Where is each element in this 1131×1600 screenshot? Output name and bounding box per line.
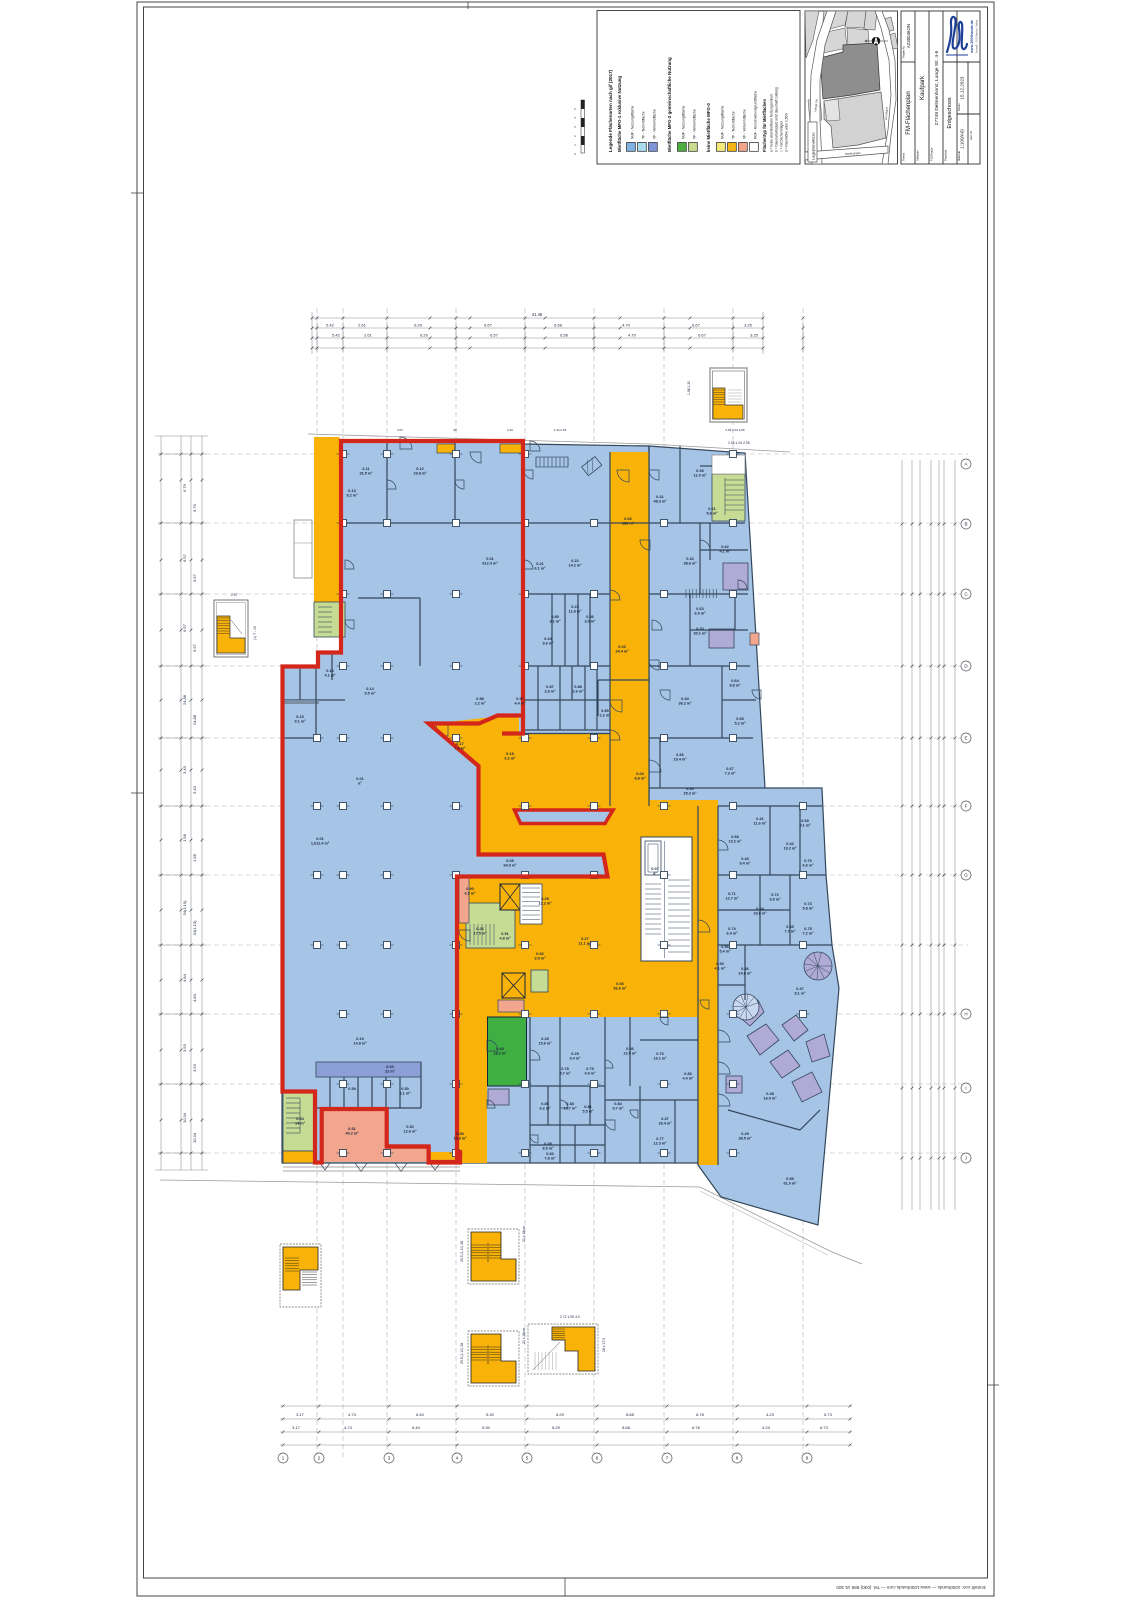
svg-text:8.1 m²: 8.1 m² bbox=[795, 992, 807, 996]
svg-text:Gebäude: Gebäude bbox=[916, 150, 920, 161]
svg-text:2.97: 2.97 bbox=[231, 593, 238, 597]
svg-text:0.31: 0.31 bbox=[656, 495, 663, 499]
svg-text:25.5 (1.10) 28: 25.5 (1.10) 28 bbox=[460, 1343, 464, 1364]
svg-text:F: F bbox=[965, 804, 968, 809]
svg-text:Mietfläche MFG-1 exklusive Nut: Mietfläche MFG-1 exklusive Nutzung bbox=[617, 76, 622, 152]
svg-text:0.92: 0.92 bbox=[536, 952, 543, 956]
svg-text:0.75: 0.75 bbox=[804, 927, 811, 931]
svg-text:6.6 m²: 6.6 m² bbox=[803, 864, 815, 868]
svg-text:5.5 m²: 5.5 m² bbox=[583, 1110, 595, 1114]
svg-text:9.4 m²: 9.4 m² bbox=[570, 1057, 582, 1061]
svg-text:19.4 m²: 19.4 m² bbox=[673, 758, 687, 762]
svg-text:6.57: 6.57 bbox=[192, 643, 197, 652]
svg-text:5.42: 5.42 bbox=[326, 323, 335, 328]
svg-text:9.6 m²: 9.6 m² bbox=[543, 642, 555, 646]
svg-text:0.91: 0.91 bbox=[501, 932, 508, 936]
svg-text:0.26: 0.26 bbox=[476, 927, 483, 931]
svg-text:Projekt-Nr.: Projekt-Nr. bbox=[902, 45, 906, 58]
svg-text:10.2 m²: 10.2 m² bbox=[728, 840, 742, 844]
svg-text:0.82: 0.82 bbox=[546, 1152, 553, 1156]
svg-text:0.54: 0.54 bbox=[296, 1117, 304, 1121]
svg-text:6.1 m²: 6.1 m² bbox=[535, 567, 547, 571]
svg-text:1.58: 1.58 bbox=[182, 833, 187, 842]
svg-text:6.57: 6.57 bbox=[192, 573, 197, 582]
svg-text:5.8 m²: 5.8 m² bbox=[803, 907, 815, 911]
svg-text:30.1 m²: 30.1 m² bbox=[693, 632, 707, 636]
svg-text:0.11: 0.11 bbox=[362, 467, 369, 471]
svg-text:6.40: 6.40 bbox=[412, 1425, 421, 1430]
svg-text:6.2 m²: 6.2 m² bbox=[540, 1107, 552, 1111]
svg-text:6.9 m²: 6.9 m² bbox=[695, 612, 707, 616]
svg-text:b = Dauerarbeitsplatz nicht da: b = Dauerarbeitsplatz nicht dauerhaft zu… bbox=[775, 87, 779, 152]
svg-text:TF - Technikfläche: TF - Technikfläche bbox=[642, 111, 646, 139]
svg-text:6.57: 6.57 bbox=[490, 333, 499, 338]
svg-text:6.73: 6.73 bbox=[820, 1425, 829, 1430]
svg-text:3.17: 3.17 bbox=[296, 1412, 305, 1417]
svg-text:0.78: 0.78 bbox=[561, 1067, 568, 1071]
svg-text:13.7 m²: 13.7 m² bbox=[563, 1107, 577, 1111]
svg-text:J: J bbox=[965, 1156, 967, 1161]
svg-text:64.0 m²: 64.0 m² bbox=[503, 864, 517, 868]
svg-text:6.40: 6.40 bbox=[416, 1412, 425, 1417]
svg-text:Legende Flächenarten nach gif: Legende Flächenarten nach gif (2017) bbox=[608, 69, 613, 152]
svg-text:0.27: 0.27 bbox=[581, 937, 588, 941]
svg-text:0.72: 0.72 bbox=[771, 893, 778, 897]
svg-text:4.84: 4.84 bbox=[192, 993, 197, 1002]
svg-text:0.89: 0.89 bbox=[601, 709, 608, 713]
svg-text:24.4 m²: 24.4 m² bbox=[615, 650, 629, 654]
svg-text:0.46: 0.46 bbox=[741, 967, 748, 971]
svg-text:0.61: 0.61 bbox=[708, 507, 715, 511]
svg-text:0.44: 0.44 bbox=[756, 907, 764, 911]
svg-text:6.67: 6.67 bbox=[698, 333, 707, 338]
svg-text:2.6 m²: 2.6 m² bbox=[573, 690, 585, 694]
svg-text:2.72 1.90 4.0: 2.72 1.90 4.0 bbox=[560, 1315, 580, 1319]
svg-text:Lageplanskizze: Lageplanskizze bbox=[811, 132, 816, 160]
svg-text:0.63: 0.63 bbox=[696, 607, 703, 611]
svg-text:G: G bbox=[964, 873, 968, 878]
svg-text:0.74: 0.74 bbox=[728, 927, 736, 931]
svg-text:0.36: 0.36 bbox=[626, 1047, 633, 1051]
svg-text:4.70: 4.70 bbox=[622, 323, 631, 328]
svg-text:34(1.10): 34(1.10) bbox=[192, 920, 197, 936]
svg-text:0.62: 0.62 bbox=[721, 545, 728, 549]
svg-text:0.59: 0.59 bbox=[348, 1087, 355, 1091]
svg-text:0.69: 0.69 bbox=[801, 819, 808, 823]
svg-text:1:100/A0): 1:100/A0) bbox=[960, 129, 965, 149]
svg-text:0.14: 0.14 bbox=[366, 687, 374, 691]
svg-text:9.1 m²: 9.1 m² bbox=[800, 824, 812, 828]
svg-text:48.3 m²: 48.3 m² bbox=[653, 500, 667, 504]
svg-text:4.1 m²: 4.1 m² bbox=[715, 967, 727, 971]
svg-text:0.01: 0.01 bbox=[316, 837, 323, 841]
svg-text:a = keine abschließbare Nutzun: a = keine abschließbare Nutzungseinheit bbox=[770, 94, 774, 152]
svg-text:8.68: 8.68 bbox=[622, 1425, 631, 1430]
svg-text:9.4 m²: 9.4 m² bbox=[740, 862, 752, 866]
svg-text:Flächentyp für Mietflächen: Flächentyp für Mietflächen bbox=[762, 99, 767, 152]
svg-text:0.16: 0.16 bbox=[326, 669, 333, 673]
svg-text:0.50: 0.50 bbox=[401, 1087, 408, 1091]
svg-text:0.37: 0.37 bbox=[661, 1117, 668, 1121]
svg-text:6.57: 6.57 bbox=[484, 323, 493, 328]
svg-text:5.4 m²: 5.4 m² bbox=[720, 950, 732, 954]
svg-text:34(1.10): 34(1.10) bbox=[182, 900, 187, 916]
svg-text:0.34: 0.34 bbox=[681, 697, 689, 701]
svg-text:25.5 (1.10) 28: 25.5 (1.10) 28 bbox=[460, 1241, 464, 1262]
svg-text:3.0 m²: 3.0 m² bbox=[585, 620, 597, 624]
svg-text:TF - Technikfläche: TF - Technikfläche bbox=[732, 111, 736, 139]
svg-text:25.3 m²: 25.3 m² bbox=[683, 792, 697, 796]
svg-text:0.57: 0.57 bbox=[516, 697, 523, 701]
svg-text:0.67: 0.67 bbox=[726, 767, 733, 771]
svg-text:6.58: 6.58 bbox=[554, 323, 563, 328]
svg-text:8.8 m²: 8.8 m² bbox=[635, 777, 647, 781]
svg-text:7.2 m²: 7.2 m² bbox=[803, 932, 815, 936]
svg-text:0.39: 0.39 bbox=[544, 1142, 551, 1146]
svg-text:0.23: 0.23 bbox=[571, 605, 578, 609]
svg-text:NUF - Nutzungsfläche: NUF - Nutzungsfläche bbox=[682, 106, 686, 139]
svg-text:4.4 m²: 4.4 m² bbox=[515, 702, 527, 706]
svg-text:0.85: 0.85 bbox=[551, 615, 558, 619]
svg-text:28 x 17.5: 28 x 17.5 bbox=[602, 1338, 606, 1352]
svg-text:12.6 m²: 12.6 m² bbox=[403, 1130, 417, 1134]
svg-text:0.04: 0.04 bbox=[636, 772, 644, 776]
svg-text:VF - Verkehrsfläche: VF - Verkehrsfläche bbox=[653, 109, 657, 139]
svg-text:16.1 m²: 16.1 m² bbox=[653, 1057, 667, 1061]
svg-text:13.2 m²: 13.2 m² bbox=[538, 902, 552, 906]
svg-text:0.05: 0.05 bbox=[506, 859, 513, 863]
svg-text:3.17: 3.17 bbox=[292, 1425, 301, 1430]
svg-text:612.4 m²: 612.4 m² bbox=[482, 562, 498, 566]
svg-text:c = mit Dachschrägen: c = mit Dachschrägen bbox=[780, 121, 784, 152]
svg-text:0.73: 0.73 bbox=[804, 902, 811, 906]
svg-text:0.06: 0.06 bbox=[616, 982, 623, 986]
svg-text:0.81: 0.81 bbox=[584, 1105, 591, 1109]
svg-text:4.23: 4.23 bbox=[766, 1412, 775, 1417]
svg-text:I: I bbox=[965, 1086, 966, 1091]
svg-text:0.60: 0.60 bbox=[386, 1065, 393, 1069]
svg-text:NUF - Nutzungsfläche: NUF - Nutzungsfläche bbox=[631, 106, 635, 139]
svg-text:0.58: 0.58 bbox=[476, 697, 483, 701]
svg-text:0.18: 0.18 bbox=[506, 752, 513, 756]
svg-text:5.6 m²: 5.6 m² bbox=[707, 512, 719, 516]
svg-text:33.8 m²: 33.8 m² bbox=[753, 912, 767, 916]
svg-text:0.22: 0.22 bbox=[571, 559, 578, 563]
svg-text:4.9 m²: 4.9 m² bbox=[585, 1072, 597, 1076]
svg-text:2.61: 2.61 bbox=[364, 333, 373, 338]
svg-text:92.6 m²: 92.6 m² bbox=[613, 987, 627, 991]
svg-text:10.3 m²: 10.3 m² bbox=[453, 1137, 467, 1141]
svg-text:Mietfläche MFG-2 gemeinschaftl: Mietfläche MFG-2 gemeinschaftliche Nutzu… bbox=[667, 57, 672, 152]
svg-text:10.34: 10.34 bbox=[182, 1112, 187, 1123]
svg-text:0.45: 0.45 bbox=[786, 925, 793, 929]
svg-text:Aufmaß - CAD-Service - Vektor: Aufmaß - CAD-Service - Vektor bbox=[976, 20, 979, 53]
svg-text:4.8 m²: 4.8 m² bbox=[500, 937, 512, 941]
svg-text:1.58: 1.58 bbox=[192, 853, 197, 862]
svg-text:www.1000hands.de: www.1000hands.de bbox=[970, 20, 974, 54]
svg-text:0.49: 0.49 bbox=[741, 1132, 748, 1136]
svg-text:4.73: 4.73 bbox=[344, 1425, 353, 1430]
svg-text:0.30: 0.30 bbox=[696, 469, 703, 473]
svg-text:24.88: 24.88 bbox=[192, 714, 197, 725]
svg-text:16.9 m²: 16.9 m² bbox=[763, 1097, 777, 1101]
svg-text:0.93: 0.93 bbox=[716, 962, 723, 966]
svg-text:Erdgeschoss: Erdgeschoss bbox=[947, 97, 953, 128]
svg-text:0.90: 0.90 bbox=[466, 887, 473, 891]
svg-text:6.4 m²: 6.4 m² bbox=[727, 932, 739, 936]
svg-text:4.73: 4.73 bbox=[348, 1412, 357, 1417]
svg-text:6.79: 6.79 bbox=[192, 503, 197, 512]
svg-text:0.25: 0.25 bbox=[541, 897, 548, 901]
svg-text:36.2 m²: 36.2 m² bbox=[678, 702, 692, 706]
svg-text:14 m²: 14 m² bbox=[295, 1122, 306, 1126]
svg-text:5.5 m²: 5.5 m² bbox=[365, 692, 377, 696]
svg-text:6.67: 6.67 bbox=[692, 323, 701, 328]
svg-text:0.07: 0.07 bbox=[651, 867, 658, 871]
svg-text:11.8 m²: 11.8 m² bbox=[569, 610, 583, 614]
svg-text:61.0 m²: 61.0 m² bbox=[783, 1182, 797, 1186]
svg-text:10.34: 10.34 bbox=[192, 1132, 197, 1143]
svg-text:29.8 m²: 29.8 m² bbox=[413, 472, 427, 476]
svg-text:0.21: 0.21 bbox=[536, 562, 543, 566]
svg-text:7.3 m²: 7.3 m² bbox=[725, 772, 737, 776]
svg-text:5.30: 5.30 bbox=[486, 1412, 495, 1417]
svg-text:8.8 m²: 8.8 m² bbox=[730, 684, 742, 688]
svg-text:9.7 m²: 9.7 m² bbox=[613, 1107, 625, 1111]
svg-text:6.2 m²: 6.2 m² bbox=[505, 757, 517, 761]
svg-text:0.64: 0.64 bbox=[731, 679, 739, 683]
svg-text:182 m²: 182 m² bbox=[622, 522, 635, 526]
svg-text:0.24: 0.24 bbox=[544, 637, 552, 641]
svg-text:15.6 m²: 15.6 m² bbox=[538, 1042, 552, 1046]
svg-text:4.4 m²: 4.4 m² bbox=[683, 1077, 695, 1081]
svg-text:2.61: 2.61 bbox=[358, 323, 367, 328]
svg-text:0.02: 0.02 bbox=[624, 517, 631, 521]
svg-text:0.42: 0.42 bbox=[786, 842, 793, 846]
svg-text:2.26: 2.26 bbox=[507, 428, 513, 432]
svg-text:14.2 m²: 14.2 m² bbox=[568, 564, 582, 568]
svg-text:6.79: 6.79 bbox=[182, 483, 187, 492]
svg-text:6.29: 6.29 bbox=[556, 1412, 565, 1417]
svg-text:0.86: 0.86 bbox=[586, 615, 593, 619]
svg-text:0.28: 0.28 bbox=[541, 1037, 548, 1041]
svg-text:A230046ON: A230046ON bbox=[906, 24, 911, 48]
svg-text:0.68: 0.68 bbox=[731, 835, 738, 839]
svg-text:0.66: 0.66 bbox=[676, 753, 683, 757]
svg-text:6.78: 6.78 bbox=[696, 1412, 705, 1417]
svg-text:Thema: Thema bbox=[902, 152, 906, 161]
svg-text:0.29: 0.29 bbox=[571, 1052, 578, 1056]
svg-text:17.5 m²: 17.5 m² bbox=[473, 932, 487, 936]
svg-text:0.48: 0.48 bbox=[766, 1092, 773, 1096]
svg-text:0.53: 0.53 bbox=[456, 1132, 463, 1136]
svg-text:8.68: 8.68 bbox=[626, 1412, 635, 1417]
svg-text:4.23: 4.23 bbox=[762, 1425, 771, 1430]
svg-text:7.7 m²: 7.7 m² bbox=[785, 930, 797, 934]
svg-text:5.42: 5.42 bbox=[332, 333, 341, 338]
svg-text:6.57: 6.57 bbox=[182, 623, 187, 632]
svg-text:0.32: 0.32 bbox=[686, 557, 693, 561]
svg-text:22.0 m²: 22.0 m² bbox=[623, 1052, 637, 1056]
svg-text:0.03: 0.03 bbox=[618, 645, 625, 649]
svg-text:27749 Delmenhorst, Lange Str.: 27749 Delmenhorst, Lange Str. 4-6 bbox=[934, 50, 940, 125]
svg-text:31.5 m²: 31.5 m² bbox=[359, 472, 373, 476]
svg-text:VF - Verkehrsfläche: VF - Verkehrsfläche bbox=[693, 109, 697, 139]
svg-text:0.19: 0.19 bbox=[356, 1037, 363, 1041]
svg-text:0.77: 0.77 bbox=[656, 1137, 663, 1141]
svg-text:1,612.4 m²: 1,612.4 m² bbox=[311, 842, 330, 846]
svg-text:6.29: 6.29 bbox=[420, 333, 429, 338]
svg-text:0.33: 0.33 bbox=[696, 627, 703, 631]
svg-text:0.43: 0.43 bbox=[741, 857, 748, 861]
svg-text:0.01: 0.01 bbox=[356, 777, 363, 781]
svg-text:22 m²: 22 m² bbox=[385, 1070, 396, 1074]
svg-text:2.06 1.04 2.05: 2.06 1.04 2.05 bbox=[725, 428, 745, 432]
svg-text:3.53: 3.53 bbox=[192, 1063, 197, 1072]
svg-text:12.7 m²: 12.7 m² bbox=[725, 897, 739, 901]
svg-text:11.0 m²: 11.0 m² bbox=[694, 474, 708, 478]
svg-text:6.29: 6.29 bbox=[552, 1425, 561, 1430]
svg-text:2.2 m²: 2.2 m² bbox=[600, 714, 612, 718]
svg-text:0.83: 0.83 bbox=[684, 1072, 691, 1076]
svg-text:3.1 m²: 3.1 m² bbox=[550, 620, 562, 624]
svg-text:3.1 m²: 3.1 m² bbox=[400, 1092, 412, 1096]
svg-text:0.76: 0.76 bbox=[656, 1052, 663, 1056]
svg-text:Planinhalt: Planinhalt bbox=[944, 149, 948, 161]
svg-text:7.8 m²: 7.8 m² bbox=[545, 1157, 557, 1161]
svg-text:0.38: 0.38 bbox=[566, 1102, 573, 1106]
svg-text:FM-Flächenplan: FM-Flächenplan bbox=[906, 91, 912, 134]
svg-text:0.41: 0.41 bbox=[756, 817, 763, 821]
svg-text:Gez.-Nr.: Gez.-Nr. bbox=[969, 130, 973, 140]
svg-text:0.35: 0.35 bbox=[686, 787, 693, 791]
svg-text:keine Mietfläche MFG-0: keine Mietfläche MFG-0 bbox=[706, 103, 711, 152]
svg-text:NUF - Nutzungsfläche: NUF - Nutzungsfläche bbox=[721, 106, 725, 139]
svg-text:0.84: 0.84 bbox=[614, 1102, 622, 1106]
svg-text:38.6 m²: 38.6 m² bbox=[683, 562, 697, 566]
svg-text:0.55: 0.55 bbox=[786, 1177, 793, 1181]
svg-text:1.44 2.65: 1.44 2.65 bbox=[554, 428, 567, 432]
svg-text:6.57: 6.57 bbox=[182, 553, 187, 562]
svg-text:0.87: 0.87 bbox=[546, 685, 553, 689]
svg-text:12.3 m²: 12.3 m² bbox=[653, 1142, 667, 1146]
svg-text:d = Raumhöhe unter 1,50m: d = Raumhöhe unter 1,50m bbox=[785, 113, 789, 152]
svg-text:(1) 7 - 15: (1) 7 - 15 bbox=[253, 626, 257, 640]
svg-text:0.80: 0.80 bbox=[541, 1102, 548, 1106]
svg-text:0.65: 0.65 bbox=[736, 717, 743, 721]
svg-text:0.88: 0.88 bbox=[574, 685, 581, 689]
svg-text:0.71: 0.71 bbox=[728, 892, 735, 896]
svg-text:B: B bbox=[964, 522, 967, 527]
svg-text:E: E bbox=[964, 736, 967, 741]
svg-text:4.1 m²: 4.1 m² bbox=[325, 674, 337, 678]
svg-text:Kaufpark: Kaufpark bbox=[920, 75, 926, 100]
svg-text:6.78: 6.78 bbox=[692, 1425, 701, 1430]
svg-text:Datum: Datum bbox=[957, 103, 961, 111]
svg-text:0.56: 0.56 bbox=[721, 945, 728, 949]
svg-text:VF - Verkehrsfläche: VF - Verkehrsfläche bbox=[743, 109, 747, 139]
svg-text:PLZ/Straße: PLZ/Straße bbox=[930, 147, 934, 161]
svg-text:0.17: 0.17 bbox=[456, 742, 463, 746]
svg-text:9.1 m²: 9.1 m² bbox=[295, 720, 307, 724]
svg-text:Maßstab: Maßstab bbox=[957, 150, 961, 161]
svg-text:2.2 m²: 2.2 m² bbox=[475, 702, 487, 706]
svg-text:0.51: 0.51 bbox=[348, 1127, 355, 1131]
svg-text:1.98 1.30: 1.98 1.30 bbox=[687, 381, 691, 395]
svg-text:3.43: 3.43 bbox=[182, 765, 187, 774]
svg-text:18.2 m²: 18.2 m² bbox=[493, 1052, 507, 1056]
svg-text:24.88: 24.88 bbox=[182, 694, 187, 705]
svg-text:24.6 m²: 24.6 m² bbox=[738, 972, 752, 976]
svg-text:3.25: 3.25 bbox=[744, 323, 753, 328]
svg-text:0.12: 0.12 bbox=[416, 467, 423, 471]
svg-text:3.43: 3.43 bbox=[192, 785, 197, 794]
svg-text:38.5 m²: 38.5 m² bbox=[738, 1137, 752, 1141]
svg-text:3.25: 3.25 bbox=[750, 333, 759, 338]
svg-text:KGF - Konstruktionsgrundfläche: KGF - Konstruktionsgrundfläche bbox=[754, 91, 758, 139]
svg-text:9.9 m²: 9.9 m² bbox=[770, 898, 782, 902]
svg-text:0.13: 0.13 bbox=[348, 489, 355, 493]
svg-text:8.2 m²: 8.2 m² bbox=[347, 494, 359, 498]
svg-text:0.52: 0.52 bbox=[406, 1125, 413, 1129]
svg-text:5.30: 5.30 bbox=[482, 1425, 491, 1430]
svg-text:4.84: 4.84 bbox=[182, 973, 187, 982]
svg-text:19.2 m²: 19.2 m² bbox=[783, 847, 797, 851]
svg-text:Erstellt von: 1000hands — w: Erstellt von: 1000hands — www.1000hands.… bbox=[836, 1585, 986, 1590]
svg-text:H: H bbox=[964, 1012, 967, 1017]
svg-text:6.73: 6.73 bbox=[824, 1412, 833, 1417]
svg-text:7.4 m²: 7.4 m² bbox=[455, 747, 467, 751]
svg-text:41.45: 41.45 bbox=[532, 312, 543, 317]
svg-text:90: 90 bbox=[453, 428, 457, 432]
svg-text:20 x 18cm: 20 x 18cm bbox=[522, 1226, 526, 1242]
svg-text:0.01: 0.01 bbox=[486, 557, 493, 561]
svg-text:4.07: 4.07 bbox=[397, 428, 403, 432]
svg-text:3.9 m²: 3.9 m² bbox=[535, 957, 547, 961]
svg-text:20 x 18cm: 20 x 18cm bbox=[522, 1328, 526, 1344]
svg-text:26.4 m²: 26.4 m² bbox=[658, 1122, 672, 1126]
svg-text:0.40: 0.40 bbox=[496, 1047, 503, 1051]
svg-text:11.1 m²: 11.1 m² bbox=[579, 942, 593, 946]
svg-text:5.2 m²: 5.2 m² bbox=[735, 722, 747, 726]
svg-text:2.06 1.04 2.05: 2.06 1.04 2.05 bbox=[728, 441, 750, 445]
svg-text:6.29: 6.29 bbox=[414, 323, 423, 328]
svg-text:6.5 m²: 6.5 m² bbox=[465, 892, 477, 896]
svg-text:3.53: 3.53 bbox=[182, 1043, 187, 1052]
svg-text:5.7 m²: 5.7 m² bbox=[560, 1072, 572, 1076]
svg-text:40.2 m²: 40.2 m² bbox=[345, 1132, 359, 1136]
svg-text:0.79: 0.79 bbox=[586, 1067, 593, 1071]
svg-text:A: A bbox=[964, 462, 967, 467]
svg-text:15.12.2023: 15.12.2023 bbox=[960, 76, 965, 99]
svg-text:0.47: 0.47 bbox=[796, 987, 803, 991]
svg-text:0.70: 0.70 bbox=[804, 859, 811, 863]
svg-text:8.9 m²: 8.9 m² bbox=[543, 1147, 555, 1151]
svg-text:4.1 m²: 4.1 m² bbox=[720, 550, 732, 554]
svg-text:2.8 m²: 2.8 m² bbox=[545, 690, 557, 694]
svg-text:6.58: 6.58 bbox=[560, 333, 569, 338]
svg-text:0.15: 0.15 bbox=[296, 715, 303, 719]
svg-text:4.70: 4.70 bbox=[628, 333, 637, 338]
svg-text:14.8 m²: 14.8 m² bbox=[353, 1042, 367, 1046]
svg-text:11.6 m²: 11.6 m² bbox=[754, 822, 768, 826]
